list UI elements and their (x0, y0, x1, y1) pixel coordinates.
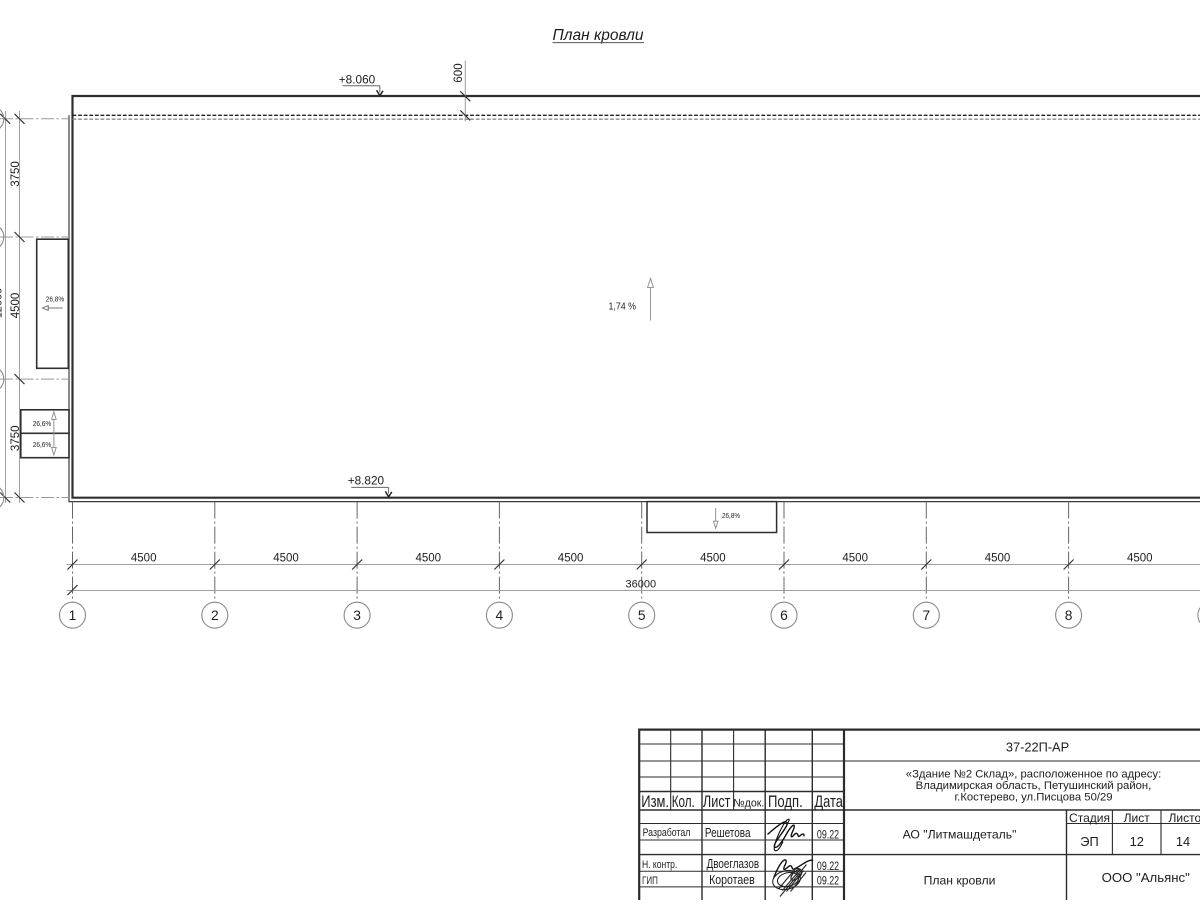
svg-text:Коротаев: Коротаев (709, 872, 755, 887)
svg-text:+8.820: +8.820 (348, 474, 385, 488)
svg-text:4500: 4500 (1127, 553, 1153, 565)
svg-text:14: 14 (1176, 834, 1190, 849)
svg-text:ЭП: ЭП (1080, 834, 1098, 849)
svg-text:600: 600 (453, 63, 465, 82)
svg-text:09.22: 09.22 (817, 860, 839, 873)
svg-text:Владимирская область, Петушинс: Владимирская область, Петушинский район, (916, 780, 1152, 792)
svg-text:Изм.: Изм. (641, 793, 669, 811)
svg-text:26,6%: 26,6% (33, 419, 52, 428)
svg-text:План кровли: План кровли (924, 873, 996, 887)
svg-text:«Здание №2 Склад», расположенн: «Здание №2 Склад», расположенное по адре… (906, 768, 1161, 780)
svg-text:№док.: №док. (733, 798, 764, 810)
svg-text:12: 12 (1130, 834, 1144, 849)
svg-text:+8.060: +8.060 (339, 72, 376, 86)
svg-text:г.Костерево, ул.Писцова 50/29: г.Костерево, ул.Писцова 50/29 (954, 791, 1112, 803)
svg-text:09.22: 09.22 (817, 874, 839, 887)
svg-text:4500: 4500 (985, 553, 1011, 565)
svg-text:3: 3 (353, 608, 361, 623)
svg-text:Кол.: Кол. (672, 793, 695, 811)
svg-text:09.22: 09.22 (817, 829, 839, 842)
svg-text:Лист: Лист (703, 793, 731, 811)
svg-text:Решетова: Решетова (705, 825, 751, 840)
svg-text:Н. контр.: Н. контр. (642, 859, 677, 871)
svg-text:4500: 4500 (131, 553, 157, 565)
svg-text:4500: 4500 (700, 553, 726, 565)
svg-text:26,8%: 26,8% (722, 511, 740, 520)
svg-text:АО "Литмашдеталь": АО "Литмашдеталь" (903, 827, 1017, 841)
svg-text:4500: 4500 (842, 553, 868, 565)
svg-text:1: 1 (69, 608, 77, 623)
svg-text:Дата: Дата (814, 793, 843, 811)
svg-text:ГИП: ГИП (642, 875, 658, 887)
svg-text:Двоеглазов: Двоеглазов (707, 856, 760, 871)
svg-text:37-22П-АР: 37-22П-АР (1006, 739, 1069, 754)
svg-text:План кровли: План кровли (553, 27, 644, 44)
svg-text:2: 2 (211, 608, 219, 623)
svg-text:4500: 4500 (558, 553, 584, 565)
svg-text:8: 8 (1065, 608, 1073, 623)
svg-text:4500: 4500 (416, 553, 442, 565)
svg-text:Подп.: Подп. (768, 793, 803, 811)
svg-text:Лист: Лист (1124, 811, 1151, 825)
svg-text:ООО "Альянс": ООО "Альянс" (1102, 870, 1190, 885)
svg-text:26,8%: 26,8% (46, 295, 65, 304)
svg-text:3750: 3750 (10, 161, 22, 187)
svg-text:26,6%: 26,6% (33, 440, 52, 449)
svg-text:4: 4 (496, 608, 504, 623)
svg-text:7: 7 (922, 608, 930, 623)
svg-text:12000: 12000 (0, 288, 5, 319)
svg-text:6: 6 (780, 608, 788, 623)
svg-text:1,74 %: 1,74 % (609, 301, 637, 312)
svg-text:4500: 4500 (10, 293, 22, 319)
svg-text:36000: 36000 (626, 578, 657, 590)
svg-text:Листов: Листов (1169, 811, 1200, 825)
svg-text:4500: 4500 (273, 553, 299, 565)
svg-text:5: 5 (638, 608, 646, 623)
svg-text:Разработал: Разработал (643, 827, 691, 839)
svg-text:Стадия: Стадия (1069, 811, 1110, 825)
